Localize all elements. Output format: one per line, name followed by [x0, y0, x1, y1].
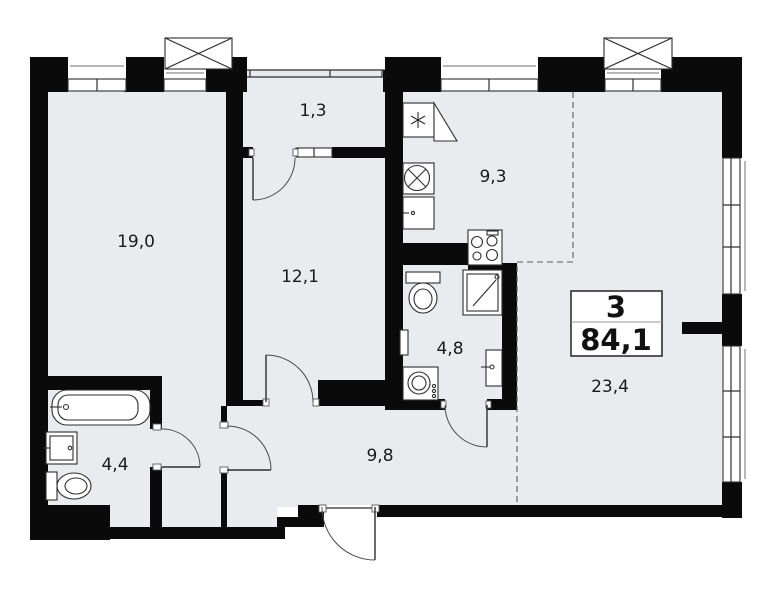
sink-icon	[43, 432, 77, 464]
floor-plan-canvas: 19,0 1,3 12,1 9,3 4,8 23,4 9,8 4,4 3 84,…	[0, 0, 783, 600]
apartment-info-box: 3 84,1	[571, 290, 662, 357]
room-label-bathroom-2: 4,8	[436, 339, 463, 359]
room-label-bedroom-2: 12,1	[281, 267, 319, 287]
stove-icon	[468, 230, 502, 265]
towel-rail-icon	[400, 330, 408, 355]
window-icon	[722, 346, 745, 482]
shower-icon	[463, 270, 502, 315]
window-icon	[722, 158, 745, 294]
room-label-bathroom-1: 4,4	[101, 455, 128, 475]
room-label-balcony: 1,3	[299, 101, 326, 121]
entry-door-icon	[319, 505, 379, 560]
toilet-icon	[406, 272, 440, 313]
room-label-living-room: 23,4	[591, 377, 629, 397]
vent-shaft-icon	[165, 38, 232, 69]
total-area-value: 84,1	[580, 323, 652, 357]
rooms-count-value: 3	[606, 290, 626, 324]
window-icon	[441, 57, 538, 91]
washing-machine-icon	[403, 367, 438, 400]
kitchen-sink-icon	[403, 163, 434, 194]
vent-shaft-icon	[604, 38, 672, 69]
window-icon	[68, 57, 126, 91]
kitchen-cabinet-icon	[403, 197, 434, 229]
bathtub-icon	[50, 390, 150, 425]
room-label-hallway: 9,8	[366, 446, 393, 466]
room-label-bedroom-1: 19,0	[117, 232, 155, 252]
room-label-kitchen: 9,3	[479, 167, 506, 187]
floor-plan-page: 19,0 1,3 12,1 9,3 4,8 23,4 9,8 4,4 3 84,…	[0, 0, 783, 600]
toilet-icon	[46, 472, 91, 500]
window-icon	[296, 148, 332, 157]
